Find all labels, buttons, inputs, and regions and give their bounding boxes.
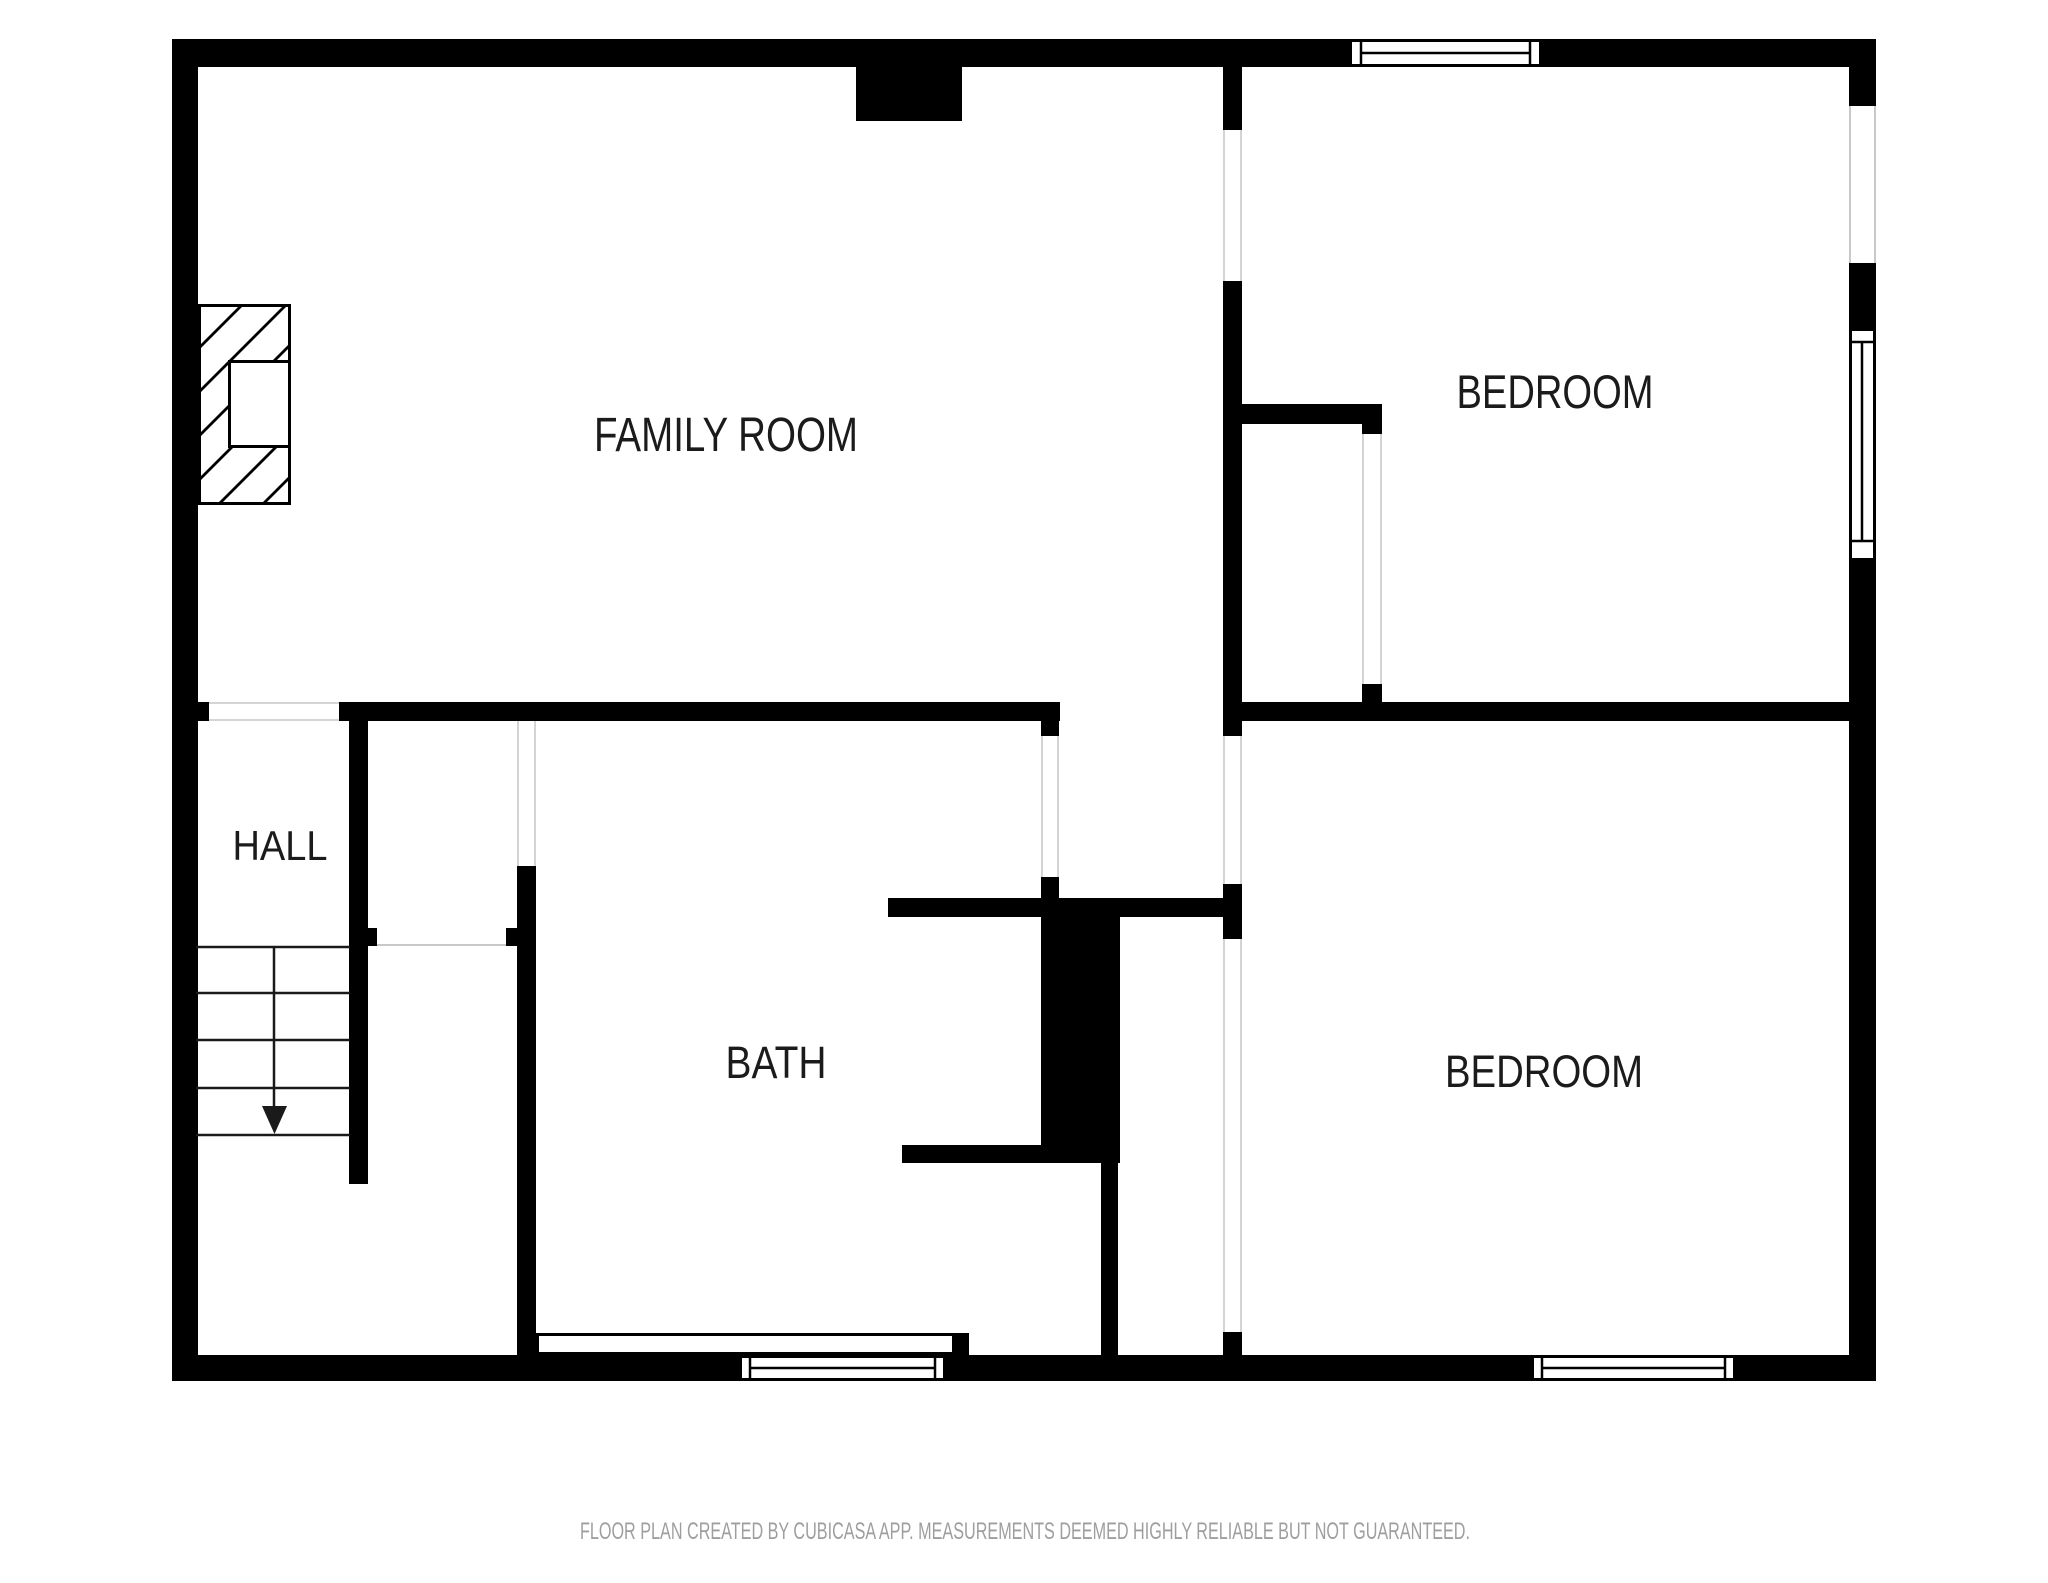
svg-text:HALL: HALL xyxy=(233,822,328,869)
svg-text:BATH: BATH xyxy=(726,1037,827,1088)
svg-text:FLOOR PLAN CREATED BY CUBICASA: FLOOR PLAN CREATED BY CUBICASA APP. MEAS… xyxy=(580,1518,1470,1545)
svg-text:BEDROOM: BEDROOM xyxy=(1457,365,1654,418)
svg-text:FAMILY ROOM: FAMILY ROOM xyxy=(594,409,858,462)
svg-text:BEDROOM: BEDROOM xyxy=(1445,1046,1643,1097)
